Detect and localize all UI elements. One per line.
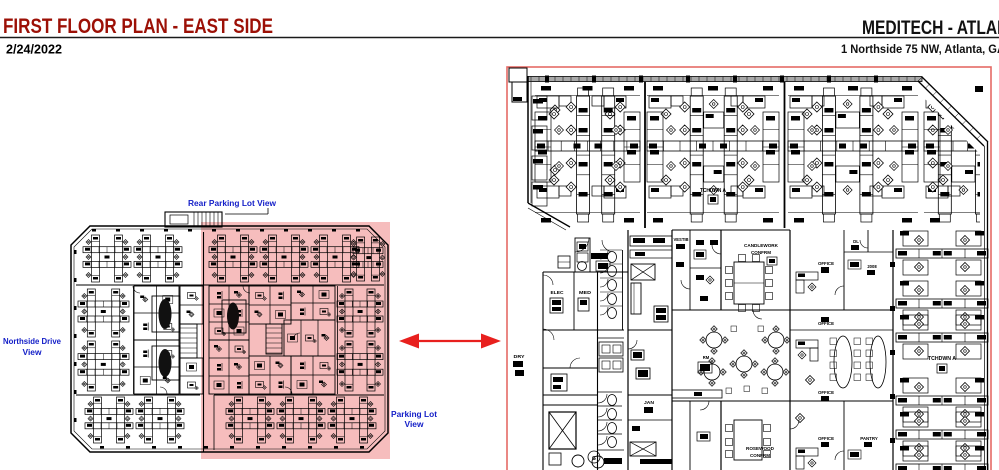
svg-text:Northside Drive: Northside Drive <box>3 337 62 346</box>
svg-text:RM: RM <box>703 355 710 360</box>
svg-text:JAN: JAN <box>644 400 654 405</box>
svg-text:FIRST FLOOR PLAN - EAST SIDE: FIRST FLOOR PLAN - EAST SIDE <box>3 15 273 38</box>
svg-text:Parking Lot: Parking Lot <box>391 410 437 419</box>
svg-text:Rear Parking Lot View: Rear Parking Lot View <box>188 199 277 208</box>
svg-text:OFFICE: OFFICE <box>818 390 834 395</box>
svg-text:MED: MED <box>579 290 592 295</box>
svg-text:ELEC: ELEC <box>551 290 565 295</box>
svg-text:TCHDWN A: TCHDWN A <box>700 188 726 194</box>
svg-text:View: View <box>23 348 43 357</box>
svg-text:TCHDWN A: TCHDWN A <box>928 356 956 362</box>
svg-text:2/24/2022: 2/24/2022 <box>6 43 62 57</box>
svg-text:MEDITECH - ATLANTA: MEDITECH - ATLANTA <box>862 18 999 39</box>
svg-text:VESTIB: VESTIB <box>673 237 688 242</box>
svg-text:G: G <box>592 456 596 462</box>
svg-text:DL: DL <box>853 239 859 244</box>
svg-text:CANDLEWORK: CANDLEWORK <box>744 243 779 248</box>
svg-text:OFFICE: OFFICE <box>818 436 834 441</box>
svg-text:1 Northside 75 NW, Atlanta, GA: 1 Northside 75 NW, Atlanta, GA <box>841 42 999 56</box>
svg-text:PANTRY: PANTRY <box>860 436 878 441</box>
svg-text:2008: 2008 <box>867 264 877 269</box>
svg-text:View: View <box>405 420 425 429</box>
svg-text:OFFICE: OFFICE <box>818 261 834 266</box>
svg-text:DRY: DRY <box>514 354 525 359</box>
